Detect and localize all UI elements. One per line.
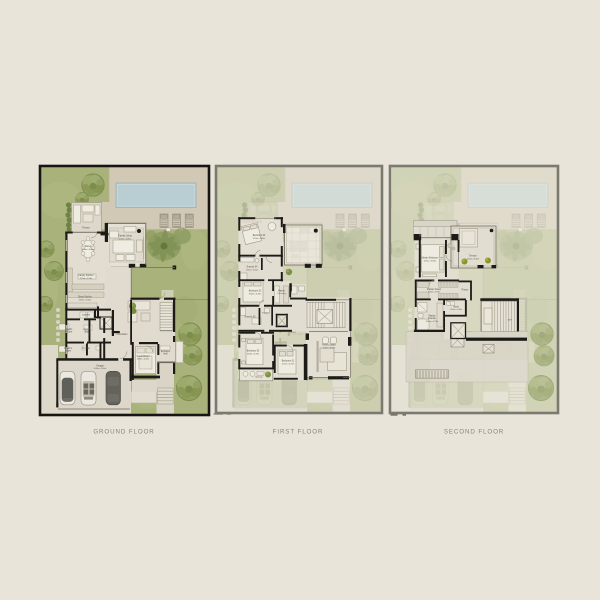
svg-text:Store: Store [453,306,459,309]
svg-text:Master Closet: Master Closet [427,288,442,291]
svg-text:3.40m x 1.95m: 3.40m x 1.95m [428,291,441,293]
svg-text:3.70m x 4.75m: 3.70m x 4.75m [282,363,295,365]
svg-text:Powder: Powder [262,313,269,315]
svg-text:3.60m x 3.70m: 3.60m x 3.70m [249,293,262,295]
svg-text:GROUND FLOOR: GROUND FLOOR [93,429,154,436]
svg-text:Pantry: Pantry [462,289,469,292]
svg-text:Master Bedroom: Master Bedroom [422,257,439,260]
svg-text:4.60m x 6.45m: 4.60m x 6.45m [467,258,480,260]
svg-text:SECOND FLOOR: SECOND FLOOR [444,429,504,436]
svg-text:Bedroom 03: Bedroom 03 [249,290,262,293]
svg-text:Ensuite: Ensuite [428,317,436,320]
svg-text:4.10m x 3.85m: 4.10m x 3.85m [253,238,266,240]
svg-text:4.20m x 4.45m: 4.20m x 4.45m [323,347,336,349]
svg-text:Balcony: Balcony [255,376,262,378]
svg-text:Ensuite 03: Ensuite 03 [245,316,257,319]
svg-text:WET: WET [508,320,513,322]
svg-text:Ensuite 04: Ensuite 04 [247,266,259,269]
svg-text:Terrace: Terrace [469,255,477,258]
svg-text:1.85m x 3.05m: 1.85m x 3.05m [246,269,259,271]
svg-text:4.45m x 3.85m: 4.45m x 3.85m [424,260,437,262]
svg-text:Master: Master [428,315,435,318]
svg-text:Bedroom 01: Bedroom 01 [282,360,295,363]
svg-text:Bedroom 02: Bedroom 02 [247,350,260,353]
svg-text:Dressing: Dressing [277,292,286,295]
svg-text:Bedroom 04: Bedroom 04 [253,234,266,237]
svg-text:Family Space: Family Space [322,345,337,347]
svg-text:3.60m x 3.70m: 3.60m x 3.70m [247,353,260,355]
svg-text:3.40m x 2.75m: 3.40m x 2.75m [426,321,439,323]
svg-text:FIRST FLOOR: FIRST FLOOR [273,429,324,436]
svg-text:1.65m x 2.40m: 1.65m x 2.40m [450,309,463,311]
